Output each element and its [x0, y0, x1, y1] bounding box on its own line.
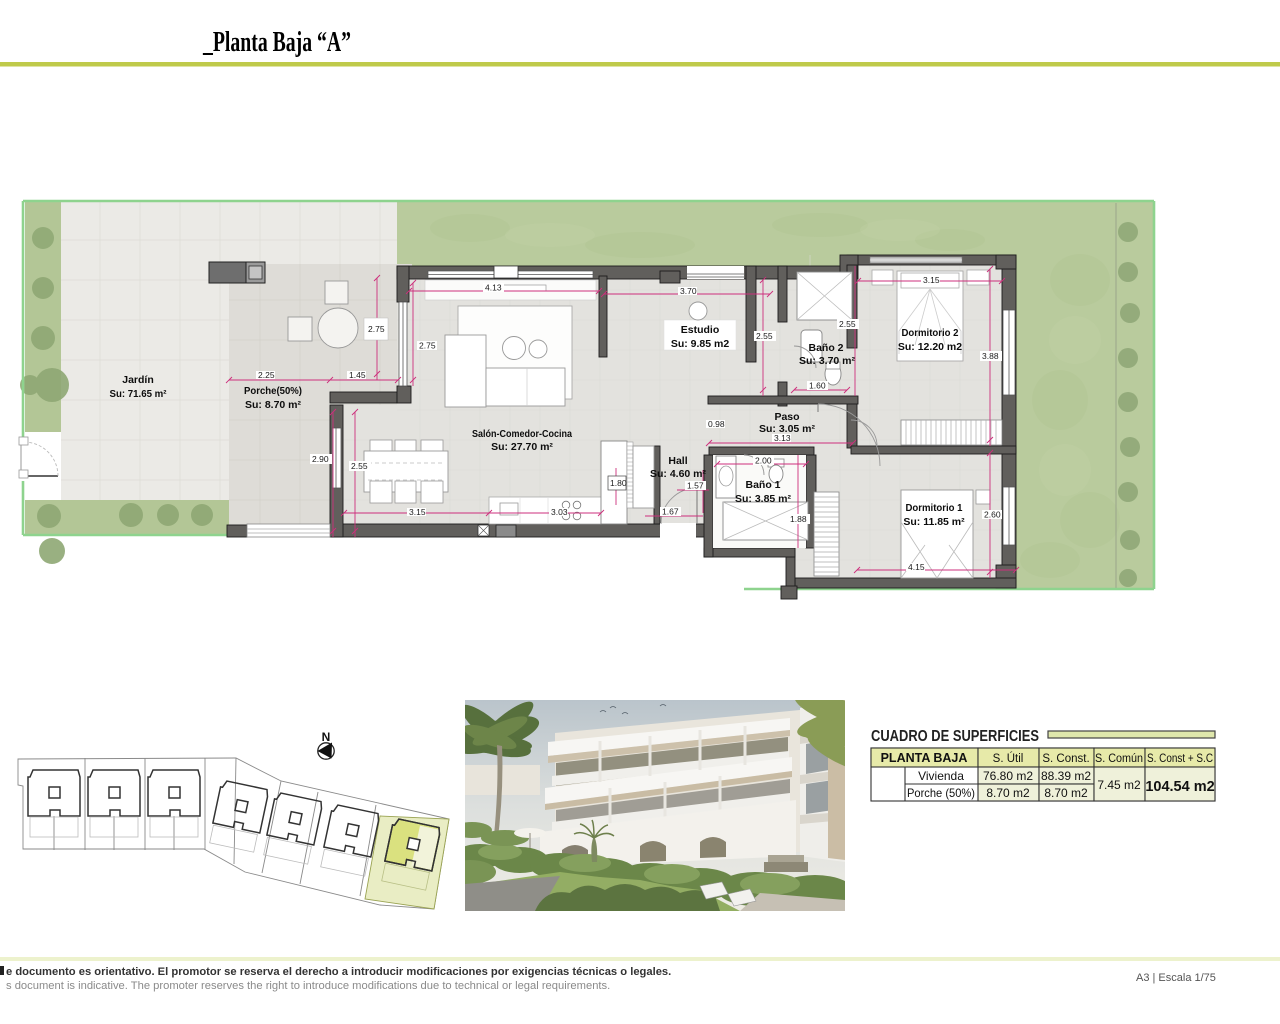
- svg-text:3.15: 3.15: [923, 275, 940, 285]
- svg-text:Baño 1: Baño 1: [745, 479, 780, 491]
- svg-text:76.80 m2: 76.80 m2: [983, 769, 1033, 783]
- svg-text:S. Útil: S. Útil: [993, 752, 1024, 765]
- svg-text:Salón-Comedor-Cocina: Salón-Comedor-Cocina: [472, 428, 572, 440]
- svg-text:Su: 12.20 m2: Su: 12.20 m2: [898, 341, 962, 353]
- svg-text:Dormitorio 1: Dormitorio 1: [906, 502, 963, 514]
- svg-text:3.03: 3.03: [551, 507, 568, 517]
- svg-text:0.98: 0.98: [708, 419, 725, 429]
- svg-text:1.60: 1.60: [809, 381, 826, 391]
- svg-text:1.88: 1.88: [790, 514, 807, 524]
- svg-text:3.88: 3.88: [982, 351, 999, 361]
- svg-text:1.80: 1.80: [610, 478, 627, 488]
- svg-text:2.60: 2.60: [984, 510, 1001, 520]
- svg-text:Porche(50%): Porche(50%): [244, 385, 302, 397]
- svg-text:S. Const.: S. Const.: [1042, 753, 1089, 765]
- svg-text:1.57: 1.57: [687, 481, 704, 491]
- svg-text:Su: 27.70 m²: Su: 27.70 m²: [491, 441, 553, 453]
- svg-text:Su: 9.85 m2: Su: 9.85 m2: [671, 338, 730, 350]
- svg-text:3.15: 3.15: [409, 507, 426, 517]
- svg-text:Jardín: Jardín: [122, 374, 154, 386]
- svg-text:Vivienda: Vivienda: [918, 769, 964, 783]
- svg-text:PLANTA BAJA: PLANTA BAJA: [881, 751, 968, 765]
- svg-text:2.55: 2.55: [839, 319, 856, 329]
- svg-text:104.54 m2: 104.54 m2: [1145, 779, 1214, 795]
- svg-text:1.67: 1.67: [662, 507, 679, 517]
- svg-text:Paso: Paso: [774, 411, 799, 423]
- svg-text:Baño 2: Baño 2: [808, 342, 843, 354]
- svg-text:2.75: 2.75: [368, 324, 385, 334]
- svg-text:CUADRO DE SUPERFICIES: CUADRO DE SUPERFICIES: [871, 728, 1039, 745]
- svg-text:7.45 m2: 7.45 m2: [1097, 778, 1141, 792]
- svg-text:2.25: 2.25: [258, 370, 275, 380]
- svg-text:2.00: 2.00: [755, 456, 772, 466]
- svg-text:Porche (50%): Porche (50%): [907, 786, 975, 800]
- svg-text:e documento es orientativo. El: e documento es orientativo. El promotor …: [6, 966, 671, 978]
- svg-text:S. Const + S.C: S. Const + S.C: [1147, 753, 1213, 765]
- svg-text:2.90: 2.90: [312, 454, 329, 464]
- svg-text:Su: 8.70 m²: Su: 8.70 m²: [245, 399, 302, 411]
- svg-text:Su: 11.85 m²: Su: 11.85 m²: [903, 516, 965, 528]
- svg-text:S. Común: S. Común: [1095, 753, 1143, 765]
- svg-text:3.70: 3.70: [680, 286, 697, 296]
- svg-text:N: N: [322, 730, 331, 744]
- svg-text:_Planta Baja “A”: _Planta Baja “A”: [202, 27, 351, 58]
- svg-text:1.45: 1.45: [349, 370, 366, 380]
- svg-text:8.70 m2: 8.70 m2: [1044, 786, 1088, 800]
- svg-text:s document is indicative. The: s document is indicative. The promoter r…: [6, 980, 610, 992]
- svg-text:Su: 71.65 m²: Su: 71.65 m²: [110, 388, 167, 400]
- svg-text:4.15: 4.15: [908, 562, 925, 572]
- svg-text:Su: 3.85 m²: Su: 3.85 m²: [735, 493, 792, 505]
- svg-text:Su: 4.60 m²: Su: 4.60 m²: [650, 468, 707, 480]
- svg-text:Estudio: Estudio: [681, 324, 720, 336]
- svg-text:2.55: 2.55: [351, 461, 368, 471]
- svg-text:Dormitorio 2: Dormitorio 2: [902, 327, 959, 339]
- svg-text:A3 | Escala 1/75: A3 | Escala 1/75: [1136, 972, 1216, 984]
- svg-text:4.13: 4.13: [485, 283, 502, 293]
- svg-text:Hall: Hall: [668, 455, 687, 467]
- svg-text:2.55: 2.55: [756, 331, 773, 341]
- svg-text:8.70 m2: 8.70 m2: [986, 786, 1030, 800]
- svg-text:2.75: 2.75: [419, 341, 436, 351]
- svg-text:88.39 m2: 88.39 m2: [1041, 769, 1091, 783]
- svg-text:Su: 3.70 m²: Su: 3.70 m²: [799, 355, 856, 367]
- svg-text:Su: 3.05 m²: Su: 3.05 m²: [759, 423, 816, 435]
